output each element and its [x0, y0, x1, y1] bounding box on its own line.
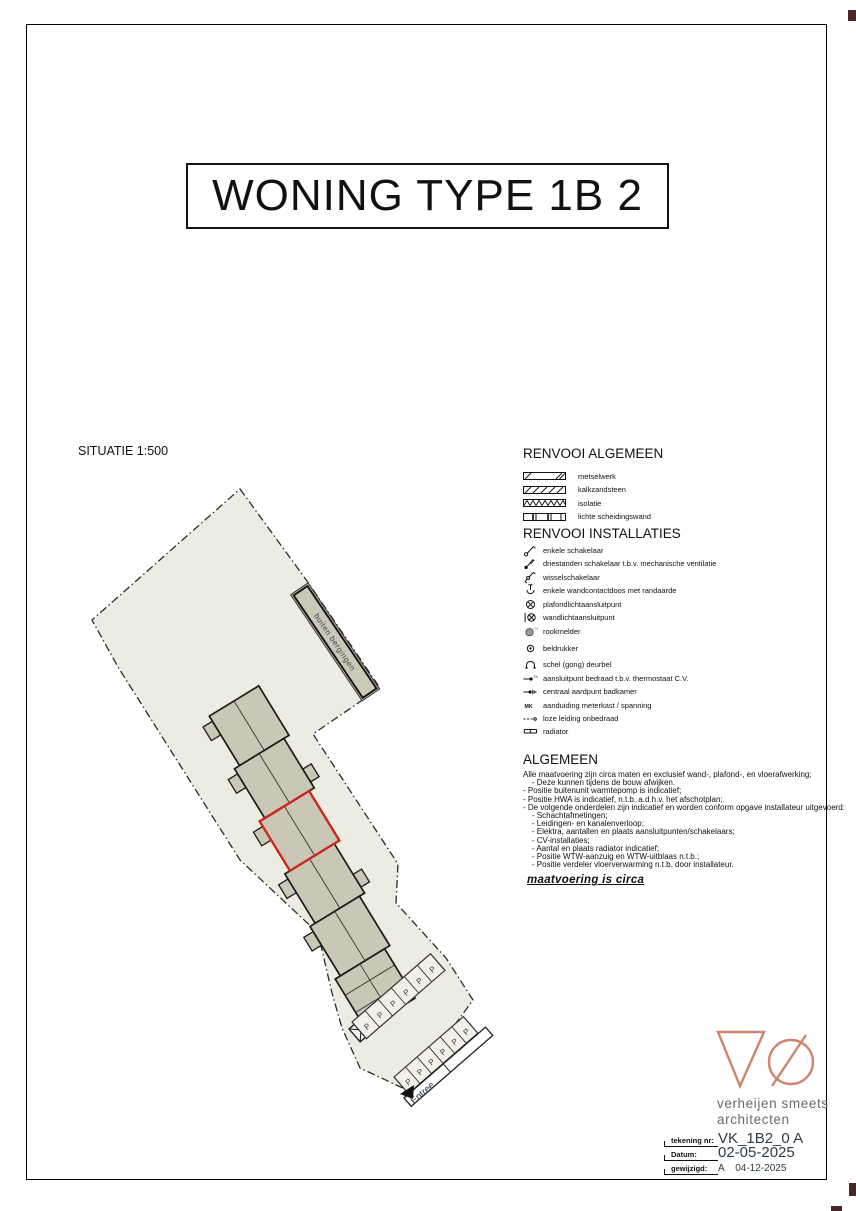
titleblock-divider [664, 1160, 718, 1161]
legend-row: kalkzandsteen [523, 484, 626, 496]
maatvoering-note: maatvoering is circa [527, 874, 644, 886]
architect-firm-name: verheijen smeets architecten [717, 1096, 829, 1127]
legend-row: isolatie [523, 497, 601, 509]
smoke-detector-icon: rm [523, 625, 538, 638]
firm-line: verheijen smeets [717, 1096, 829, 1112]
bell-push-icon [523, 642, 538, 655]
legend-label: aanduiding meterkast / spanning [543, 701, 651, 710]
three-position-switch-icon [523, 557, 538, 570]
legend-label: metselwerk [578, 472, 616, 481]
svg-text:MK: MK [525, 704, 533, 710]
titleblock-tick [664, 1155, 665, 1161]
meter-cupboard-icon: MK [523, 699, 538, 712]
legend-row: plafondlichtaansluitpunt [523, 598, 621, 611]
titleblock-tick [664, 1141, 665, 1147]
two-way-switch-icon [523, 571, 538, 584]
algemeen-notes: Alle maatvoering zijn circa maten en exc… [523, 771, 845, 869]
svg-text:Th: Th [533, 675, 537, 679]
legend-row: Th aansluitpunt bedraad t.b.v. thermosta… [523, 672, 689, 685]
wall-light-point-icon [523, 611, 538, 624]
titleblock-divider [664, 1146, 718, 1147]
date-label: Datum: [671, 1150, 697, 1159]
legend-general-heading: RENVOOI ALGEMEEN [523, 446, 663, 461]
legend-label: kalkzandsteen [578, 485, 626, 494]
drawing-sheet: WONING TYPE 1B 2 SITUATIE 1:500 buiten b… [0, 0, 856, 1211]
wall-socket-earthed-icon [523, 584, 538, 597]
legend-label: wandlichtaansluitpunt [543, 613, 615, 622]
legend-label: beldrukker [543, 644, 578, 653]
legend-label: schel (gong) deurbel [543, 660, 611, 669]
legend-row: wisselschakelaar [523, 571, 600, 584]
legend-row: radiator [523, 725, 568, 738]
legend-row: enkele schakelaar [523, 544, 603, 557]
legend-label: loze leiding onbedraad [543, 714, 618, 723]
firm-line: architecten [717, 1112, 829, 1128]
legend-row: lichte scheidingswand [523, 511, 651, 523]
thermostat-connection-icon: Th [523, 672, 538, 685]
legend-label: driestanden schakelaar t.b.v. mechanisch… [543, 559, 716, 568]
single-switch-icon [523, 544, 538, 557]
legend-label: plafondlichtaansluitpunt [543, 600, 621, 609]
legend-label: centraal aardpunt badkamer [543, 687, 637, 696]
masonry-hatch-icon [523, 472, 566, 480]
zigzag-hatch-icon [523, 499, 566, 507]
legend-row: schel (gong) deurbel [523, 658, 611, 671]
titleblock-tick [664, 1169, 665, 1175]
legend-row: rm rookmelder [523, 625, 581, 638]
radiator-icon [523, 725, 538, 738]
diagonal-hatch-icon [523, 486, 566, 494]
date-value: 02-05-2025 [718, 1144, 795, 1161]
earth-point-icon [523, 685, 538, 698]
legend-installations-heading: RENVOOI INSTALLATIES [523, 526, 681, 541]
legend-label: radiator [543, 727, 568, 736]
doorbell-gong-icon [523, 658, 538, 671]
legend-row: MK aanduiding meterkast / spanning [523, 699, 651, 712]
note-line: - Positie verdeler vloerverwarming n.t.b… [523, 861, 845, 869]
titleblock-divider [664, 1174, 718, 1175]
drawing-number-label: tekening nr: [671, 1136, 714, 1145]
legend-label: rookmelder [543, 627, 581, 636]
legend-label: isolatie [578, 499, 601, 508]
legend-label: enkele wandcontactdoos met randaarde [543, 586, 676, 595]
legend-row: driestanden schakelaar t.b.v. mechanisch… [523, 557, 716, 570]
legend-label: enkele schakelaar [543, 546, 603, 555]
legend-row: enkele wandcontactdoos met randaarde [523, 584, 676, 597]
legend-row: metselwerk [523, 470, 616, 482]
legend-row: loze leiding onbedraad [523, 712, 618, 725]
svg-text:rm: rm [534, 626, 538, 630]
legend-label: aansluitpunt bedraad t.b.v. thermostaat … [543, 674, 689, 683]
legend-row: wandlichtaansluitpunt [523, 611, 615, 624]
legend-row: centraal aardpunt badkamer [523, 685, 637, 698]
ceiling-light-point-icon [523, 598, 538, 611]
architect-logo-icon [712, 1028, 814, 1090]
revision-value: A 04-12-2025 [718, 1163, 786, 1174]
algemeen-heading: ALGEMEEN [523, 752, 598, 767]
unwired-conduit-icon [523, 712, 538, 725]
revision-label: gewijzigd: [671, 1164, 707, 1173]
legend-row: beldrukker [523, 642, 578, 655]
segmented-wall-icon [523, 513, 566, 521]
legend-label: wisselschakelaar [543, 573, 600, 582]
legend-label: lichte scheidingswand [578, 512, 651, 521]
